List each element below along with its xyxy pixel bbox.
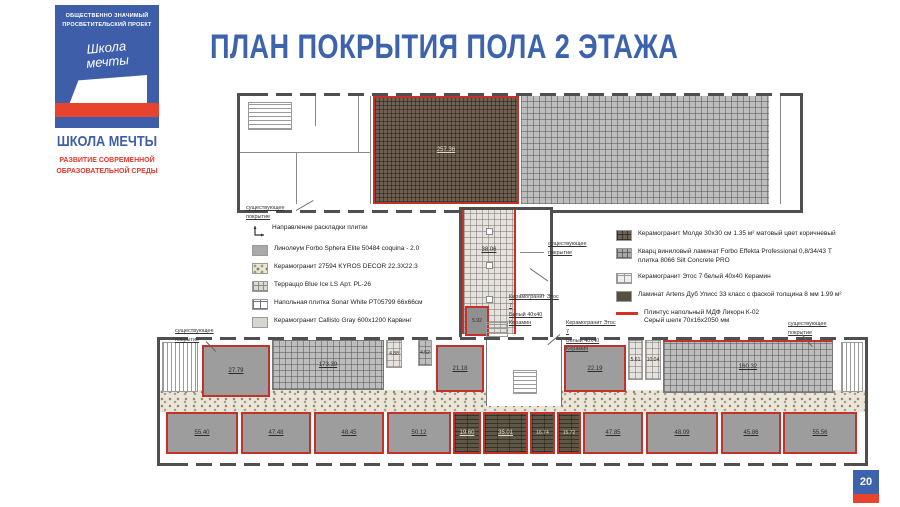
molde-swatch bbox=[616, 230, 632, 241]
legend-label: Терраццо Blue Ice LS Арт. PL-26 bbox=[274, 281, 371, 290]
column bbox=[486, 296, 493, 303]
room-area-label: 5.92 bbox=[472, 318, 482, 324]
school-building-icon bbox=[69, 75, 147, 105]
room: 47.48 bbox=[241, 412, 311, 454]
room: 48.45 bbox=[314, 412, 384, 454]
legend-right: Керамогранит Молде 30x30 см 1.35 м² мато… bbox=[616, 230, 868, 333]
lower-building: 34.02 27.79 173.39 4.88 4.52 21.18 bbox=[157, 337, 868, 466]
room-area-label: 27.79 bbox=[228, 368, 243, 374]
small-room: 4.88 bbox=[386, 340, 402, 368]
legend-item: Линолеум Forbo Sphera Elite 50484 coquin… bbox=[252, 245, 452, 256]
legend-item: Керамогранит Callisto Gray 600x1200 Карв… bbox=[252, 317, 452, 328]
legend-label: Кварц виниловый ламинат Forbo Effekta Pr… bbox=[638, 248, 848, 266]
room: 55.40 bbox=[166, 412, 238, 454]
logo-name: ШКОЛА МЕЧТЫ bbox=[48, 133, 167, 150]
stairs-icon bbox=[162, 342, 198, 392]
legend-item: Керамогранит 27594 KYROS DECOR 22.3X22.3 bbox=[252, 263, 452, 274]
logo-project-line1: ОБЩЕСТВЕННО ЗНАЧИМЫЙ bbox=[55, 12, 159, 21]
existing-coverage-note: существующее покрытие bbox=[548, 240, 587, 258]
central-stair-hall bbox=[486, 340, 562, 406]
existing-floor-zone bbox=[521, 96, 769, 204]
room-area-label: 45.86 bbox=[743, 430, 758, 436]
stairs-icon bbox=[513, 370, 537, 394]
room-area-label: 38.06 bbox=[481, 247, 496, 253]
logo-project-text: ОБЩЕСТВЕННО ЗНАЧИМЫЙ ПРОСВЕТИТЕЛЬСКИЙ ПР… bbox=[55, 12, 159, 30]
partition bbox=[358, 96, 359, 152]
partition bbox=[315, 96, 316, 126]
legend-item: Ламинат Artens Дуб Улисс 33 класс с фаск… bbox=[616, 291, 868, 302]
tile-note: Керамогранит Этос 7 Белый 40x40 Керамин bbox=[566, 319, 618, 354]
stairs-icon bbox=[841, 342, 863, 392]
corridor-grid: 173.39 bbox=[272, 340, 384, 390]
school-building-base-icon bbox=[55, 103, 159, 117]
tile-note: Керамогранит Этос 7 Белый 40x40 Керамин bbox=[509, 293, 561, 328]
room-area-label: 16.74 bbox=[536, 430, 549, 436]
page-title: ПЛАН ПОКРЫТИЯ ПОЛА 2 ЭТАЖА bbox=[210, 28, 678, 67]
logo-script-text: Школа мечты bbox=[54, 37, 160, 75]
room-area-label: 5.61 bbox=[631, 357, 641, 363]
legend-item: Керамогранит Молде 30x30 см 1.35 м² мато… bbox=[616, 230, 868, 241]
partition bbox=[240, 152, 370, 153]
room-area-label: 22.19 bbox=[587, 366, 602, 372]
room-area-label: 50.12 bbox=[411, 430, 426, 436]
room-area-label: 160.32 bbox=[739, 364, 757, 370]
upper-building: 257.36 bbox=[237, 93, 803, 213]
legend-label: Керамогранит Этос 7 белый 40x40 Керамин bbox=[638, 273, 771, 282]
room: 21.18 bbox=[436, 345, 484, 392]
partition bbox=[780, 96, 781, 204]
artens-laminate-swatch bbox=[616, 291, 632, 302]
room-area-label: 4.88 bbox=[389, 351, 399, 357]
partition bbox=[296, 152, 297, 204]
room: 27.79 bbox=[202, 345, 270, 397]
legend-label: Ламинат Artens Дуб Улисс 33 класс с фаск… bbox=[638, 291, 848, 300]
windows-strip bbox=[172, 463, 853, 466]
legend-item: Напольная плитка Sonar White PT05799 66x… bbox=[252, 299, 452, 310]
legend-label: Керамогранит Callisto Gray 600x1200 Карв… bbox=[274, 317, 412, 326]
legend-label: Линолеум Forbo Sphera Elite 50484 coquin… bbox=[274, 245, 419, 254]
room-area-label: 47.85 bbox=[605, 430, 620, 436]
legend-item: Терраццо Blue Ice LS Арт. PL-26 bbox=[252, 281, 452, 292]
partition bbox=[370, 96, 371, 204]
slide: ОБЩЕСТВЕННО ЗНАЧИМЫЙ ПРОСВЕТИТЕЛЬСКИЙ ПР… bbox=[0, 0, 900, 507]
logo-project-line2: ПРОСВЕТИТЕЛЬСКИЙ ПРОЕКТ bbox=[55, 21, 159, 30]
room-area-label: 48.45 bbox=[341, 430, 356, 436]
direction-arrows-icon bbox=[252, 224, 266, 238]
stairs-icon bbox=[486, 322, 508, 338]
column bbox=[486, 262, 493, 269]
page-number: 20 bbox=[853, 470, 879, 494]
room: 19.60 bbox=[453, 412, 481, 454]
badge-red-strip bbox=[853, 494, 879, 503]
legend-item: Кварц виниловый ламинат Forbo Effekta Pr… bbox=[616, 248, 868, 266]
room: 50.12 bbox=[387, 412, 451, 454]
partition bbox=[520, 252, 544, 253]
logo: ОБЩЕСТВЕННО ЗНАЧИМЫЙ ПРОСВЕТИТЕЛЬСКИЙ ПР… bbox=[55, 5, 159, 128]
room-area-label: 55.40 bbox=[194, 430, 209, 436]
room-area-label: 4.52 bbox=[420, 350, 430, 356]
hall-room: 257.36 bbox=[373, 96, 519, 204]
room-area-label: 10.04 bbox=[647, 357, 660, 363]
room-area-label: 257.36 bbox=[437, 147, 455, 153]
existing-coverage-note: существующее покрытие bbox=[246, 204, 285, 222]
terrazzo-swatch bbox=[252, 281, 268, 292]
legend-label: Направление раскладки плитки bbox=[272, 224, 368, 233]
room-area-label: 55.56 bbox=[812, 430, 827, 436]
legend-left: Направление раскладки плитки Линолеум Fo… bbox=[252, 224, 452, 335]
logo-tagline: РАЗВИТИЕ СОВРЕМЕННОЙ ОБРАЗОВАТЕЛЬНОЙ СРЕ… bbox=[37, 155, 177, 177]
room: 47.85 bbox=[583, 412, 643, 454]
linoleum-swatch bbox=[252, 245, 268, 256]
legend-label: Керамогранит Молде 30x30 см 1.35 м² мато… bbox=[638, 230, 836, 239]
classroom-band: 55.40 47.48 48.45 50.12 19.60 35.01 16.7… bbox=[160, 412, 865, 454]
kyros-decor-swatch bbox=[252, 263, 268, 274]
room-area-label: 47.48 bbox=[268, 430, 283, 436]
room-area-label: 19.60 bbox=[459, 430, 474, 436]
room: 35.01 bbox=[483, 412, 528, 454]
legend-item: Направление раскладки плитки bbox=[252, 224, 452, 238]
column bbox=[486, 228, 493, 235]
small-room: 4.52 bbox=[418, 340, 432, 366]
small-room: 10.04 bbox=[645, 340, 661, 380]
plinth-line-swatch bbox=[616, 312, 638, 315]
forbo-effekta-swatch bbox=[616, 248, 632, 259]
room: 16.74 bbox=[530, 412, 555, 454]
legend-item: Плинтус напольный МДФ Ликорн К-02 Серый … bbox=[616, 309, 868, 327]
room-area-label: 35.01 bbox=[498, 430, 513, 436]
legend-label: Напольная плитка Sonar White PT05799 66x… bbox=[274, 299, 423, 308]
room: 55.56 bbox=[783, 412, 857, 454]
grid-zone: 160.32 bbox=[663, 340, 833, 393]
room-area-label: 15.72 bbox=[563, 430, 576, 436]
legend-label: Керамогранит 27594 KYROS DECOR 22.3X22.3 bbox=[274, 263, 418, 272]
sonar-white-swatch bbox=[252, 299, 268, 310]
stairs-icon bbox=[248, 102, 292, 130]
legend-item: Керамогранит Этос 7 белый 40x40 Керамин bbox=[616, 273, 868, 284]
room: 48.09 bbox=[646, 412, 718, 454]
room: 15.72 bbox=[557, 412, 581, 454]
room: 45.86 bbox=[721, 412, 781, 454]
room-area-label: 173.39 bbox=[319, 362, 337, 368]
small-room: 5.61 bbox=[628, 340, 643, 380]
callisto-gray-swatch bbox=[252, 317, 268, 328]
legend-label: Плинтус напольный МДФ Ликорн К-02 Серый … bbox=[644, 309, 759, 327]
room-area-label: 48.09 bbox=[674, 430, 689, 436]
room-area-label: 21.18 bbox=[452, 366, 467, 372]
etos-swatch bbox=[616, 273, 632, 284]
page-number-badge: 20 bbox=[853, 470, 879, 503]
